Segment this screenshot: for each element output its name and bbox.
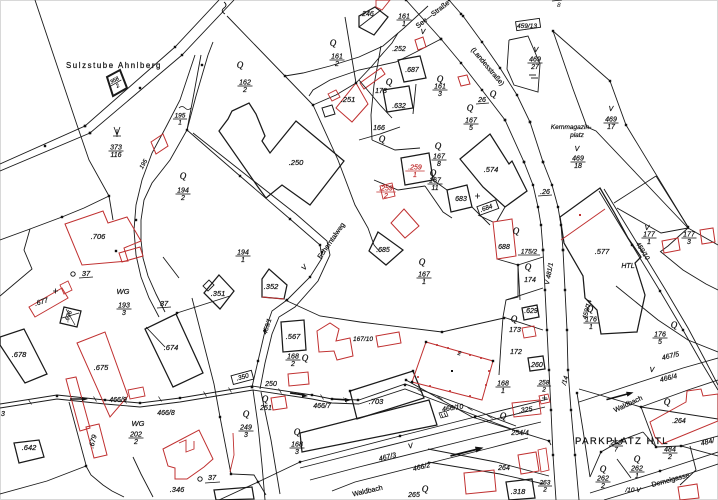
svg-text:.351: .351 bbox=[211, 289, 226, 298]
svg-text:254/4: 254/4 bbox=[510, 430, 529, 437]
svg-text:469: 469 bbox=[605, 117, 617, 124]
svg-text:.264: .264 bbox=[672, 418, 686, 425]
svg-text:.260: .260 bbox=[529, 362, 543, 369]
svg-text:.642: .642 bbox=[22, 443, 37, 452]
svg-text:2: 2 bbox=[541, 387, 546, 394]
svg-text:2: 2 bbox=[334, 61, 339, 68]
svg-text:V: V bbox=[650, 367, 656, 374]
svg-text:.251: .251 bbox=[341, 95, 356, 104]
svg-text:Q: Q bbox=[437, 74, 444, 84]
svg-text:.325: .325 bbox=[519, 406, 534, 415]
svg-text:.567: .567 bbox=[286, 332, 301, 341]
svg-text:1: 1 bbox=[178, 120, 182, 127]
svg-text:161: 161 bbox=[331, 54, 343, 61]
svg-text:8: 8 bbox=[557, 2, 561, 9]
svg-text:467/3: 467/3 bbox=[378, 452, 397, 463]
svg-text:263: 263 bbox=[539, 480, 551, 487]
svg-text:167: 167 bbox=[465, 118, 478, 125]
svg-text:178: 178 bbox=[375, 88, 387, 95]
svg-text:Q: Q bbox=[237, 60, 244, 70]
svg-text:37: 37 bbox=[208, 473, 217, 482]
svg-text:Q: Q bbox=[664, 397, 671, 407]
svg-text:Q: Q bbox=[435, 141, 442, 151]
svg-text:Q: Q bbox=[243, 409, 250, 419]
svg-text:Q: Q bbox=[634, 454, 641, 464]
svg-text:168: 168 bbox=[291, 442, 303, 449]
svg-text:176: 176 bbox=[654, 332, 666, 339]
svg-text:2: 2 bbox=[667, 454, 672, 461]
svg-text:8: 8 bbox=[437, 161, 441, 168]
svg-text:1: 1 bbox=[422, 279, 426, 286]
svg-text:467/5: 467/5 bbox=[661, 351, 680, 362]
svg-text:168: 168 bbox=[497, 381, 509, 388]
svg-text:HTL: HTL bbox=[621, 263, 634, 270]
svg-text:2: 2 bbox=[600, 483, 605, 490]
svg-text:1: 1 bbox=[589, 324, 593, 331]
svg-text:1: 1 bbox=[241, 257, 245, 264]
svg-text:2: 2 bbox=[456, 350, 462, 357]
svg-text:195: 195 bbox=[175, 113, 186, 120]
svg-text:.246: .246 bbox=[360, 11, 374, 18]
svg-text:1: 1 bbox=[413, 172, 417, 179]
svg-text:Q: Q bbox=[490, 89, 497, 99]
svg-text:177: 177 bbox=[643, 232, 656, 239]
svg-text:Q: Q bbox=[294, 427, 301, 437]
svg-text:167: 167 bbox=[418, 272, 431, 279]
svg-text:.577: .577 bbox=[595, 247, 610, 256]
svg-text:251: 251 bbox=[259, 405, 272, 412]
svg-text:Waldbach: Waldbach bbox=[352, 485, 384, 499]
svg-text:5: 5 bbox=[658, 339, 662, 346]
svg-text:.703: .703 bbox=[369, 397, 384, 406]
svg-text:466/2: 466/2 bbox=[412, 462, 431, 473]
svg-text:469: 469 bbox=[529, 57, 541, 64]
svg-text:162: 162 bbox=[239, 80, 251, 87]
svg-text:3: 3 bbox=[687, 239, 691, 246]
svg-text:Q: Q bbox=[330, 38, 337, 48]
svg-text:2: 2 bbox=[133, 439, 138, 446]
svg-text:.675: .675 bbox=[94, 363, 109, 372]
svg-text:3: 3 bbox=[438, 91, 442, 98]
svg-text:Sulzstube Ahnlberg: Sulzstube Ahnlberg bbox=[66, 61, 162, 70]
svg-text:.346: .346 bbox=[170, 485, 185, 494]
svg-text:2: 2 bbox=[242, 87, 247, 94]
svg-text:Q: Q bbox=[500, 411, 507, 421]
svg-text:PARKPLATZ HTL: PARKPLATZ HTL bbox=[575, 436, 669, 447]
svg-text:Q: Q bbox=[419, 257, 426, 267]
svg-text:.677: .677 bbox=[34, 297, 50, 308]
svg-text:264: 264 bbox=[497, 465, 510, 472]
svg-text:Waldbach: Waldbach bbox=[613, 395, 644, 414]
svg-text:WG: WG bbox=[117, 287, 130, 296]
svg-text:459/1: 459/1 bbox=[262, 317, 274, 335]
svg-text:27: 27 bbox=[530, 64, 540, 71]
svg-text:161: 161 bbox=[434, 84, 446, 91]
svg-text:688: 688 bbox=[498, 244, 510, 251]
svg-text:V: V bbox=[421, 29, 427, 36]
svg-text:265: 265 bbox=[407, 492, 420, 499]
svg-text:250: 250 bbox=[264, 381, 277, 388]
svg-text:466/8: 466/8 bbox=[157, 410, 175, 417]
svg-text:167/10: 167/10 bbox=[353, 336, 373, 343]
svg-text:174: 174 bbox=[524, 277, 536, 284]
svg-text:.259: .259 bbox=[408, 165, 422, 172]
svg-text:37: 37 bbox=[160, 299, 169, 308]
svg-text:.574: .574 bbox=[484, 165, 499, 174]
svg-text:/10 V: /10 V bbox=[624, 487, 641, 494]
svg-text:484: 484 bbox=[664, 447, 676, 454]
svg-text:Q: Q bbox=[671, 320, 678, 330]
svg-text:193: 193 bbox=[118, 303, 130, 310]
svg-text:262: 262 bbox=[596, 476, 609, 483]
svg-text:Q: Q bbox=[379, 134, 386, 144]
svg-text:.632: .632 bbox=[392, 103, 406, 110]
svg-text:V: V bbox=[575, 146, 581, 153]
svg-text:Q: Q bbox=[180, 171, 187, 181]
svg-text:Q: Q bbox=[600, 464, 607, 474]
svg-text:466/9: 466/9 bbox=[109, 397, 127, 404]
svg-text:V: V bbox=[301, 263, 310, 272]
svg-text:7: 7 bbox=[614, 447, 618, 454]
svg-text:262: 262 bbox=[610, 440, 622, 447]
svg-text:484/: 484/ bbox=[700, 437, 716, 447]
svg-text:Q: Q bbox=[430, 168, 437, 178]
svg-text:194: 194 bbox=[177, 188, 189, 195]
svg-text:167: 167 bbox=[429, 178, 442, 185]
svg-text:3: 3 bbox=[244, 432, 248, 439]
svg-text:373: 373 bbox=[110, 145, 122, 152]
svg-text:.679: .679 bbox=[88, 434, 98, 449]
svg-text:V: V bbox=[408, 442, 416, 450]
svg-text:175/2: 175/2 bbox=[521, 249, 538, 256]
svg-text:5: 5 bbox=[469, 125, 473, 132]
svg-text:249: 249 bbox=[239, 425, 252, 432]
svg-text:18: 18 bbox=[574, 163, 582, 170]
svg-text:168: 168 bbox=[287, 354, 299, 361]
svg-text:3: 3 bbox=[1, 411, 5, 418]
svg-text:.352: .352 bbox=[264, 282, 279, 291]
svg-text:2: 2 bbox=[383, 193, 388, 200]
svg-text:V 481/1: V 481/1 bbox=[544, 262, 555, 286]
svg-text:173: 173 bbox=[509, 327, 521, 334]
svg-text:See—Straße: See—Straße bbox=[415, 0, 451, 30]
svg-text:.687: .687 bbox=[405, 67, 420, 74]
svg-text:Q: Q bbox=[386, 77, 393, 87]
svg-text:WG: WG bbox=[132, 419, 145, 428]
svg-text:Kernmagazin-: Kernmagazin- bbox=[551, 124, 592, 131]
svg-text:683: 683 bbox=[455, 196, 467, 203]
svg-text:Q: Q bbox=[467, 103, 474, 113]
svg-text:3: 3 bbox=[122, 310, 126, 317]
svg-text:.678: .678 bbox=[12, 350, 27, 359]
svg-text:161: 161 bbox=[398, 14, 410, 21]
svg-text:Echerntalweg: Echerntalweg bbox=[317, 222, 347, 261]
svg-text:Q: Q bbox=[262, 394, 269, 404]
svg-text:262: 262 bbox=[630, 466, 643, 473]
svg-text:Q: Q bbox=[511, 314, 518, 324]
svg-text:3: 3 bbox=[295, 449, 299, 456]
svg-text:.259: .259 bbox=[379, 186, 393, 193]
svg-text:.706: .706 bbox=[91, 232, 106, 241]
svg-text:172: 172 bbox=[510, 349, 522, 356]
svg-text:V: V bbox=[534, 47, 540, 54]
svg-text:37: 37 bbox=[82, 269, 91, 278]
svg-text:.674: .674 bbox=[164, 343, 179, 352]
svg-text:1: 1 bbox=[635, 473, 639, 480]
svg-text:Q: Q bbox=[302, 353, 309, 363]
svg-text:167: 167 bbox=[433, 154, 446, 161]
svg-text:.685: .685 bbox=[376, 247, 390, 254]
svg-text:.318: .318 bbox=[511, 487, 526, 496]
svg-text:Q: Q bbox=[513, 226, 520, 236]
svg-text:166: 166 bbox=[373, 125, 385, 132]
svg-text:2: 2 bbox=[542, 487, 547, 494]
svg-text:Q: Q bbox=[525, 262, 532, 272]
svg-text:.252: .252 bbox=[392, 46, 406, 53]
svg-text:2: 2 bbox=[290, 361, 295, 368]
svg-text:V: V bbox=[609, 106, 615, 113]
svg-text:platz: platz bbox=[569, 132, 584, 139]
svg-text:202: 202 bbox=[129, 432, 142, 439]
svg-text:.629: .629 bbox=[524, 308, 538, 315]
svg-text:177: 177 bbox=[683, 232, 696, 239]
svg-text:11: 11 bbox=[431, 185, 438, 192]
svg-text:469: 469 bbox=[572, 156, 584, 163]
svg-text:.250: .250 bbox=[289, 158, 304, 167]
svg-text:2: 2 bbox=[180, 195, 185, 202]
svg-text:Q: Q bbox=[422, 484, 429, 494]
svg-text:1: 1 bbox=[501, 388, 505, 395]
svg-text:1: 1 bbox=[647, 239, 651, 246]
svg-text:194: 194 bbox=[237, 250, 249, 257]
svg-text:116: 116 bbox=[110, 152, 121, 159]
svg-text:1: 1 bbox=[402, 21, 406, 28]
svg-text:17: 17 bbox=[607, 124, 616, 131]
svg-text:2: 2 bbox=[114, 83, 121, 90]
svg-text:466/7: 466/7 bbox=[313, 403, 332, 410]
svg-text:466/10: 466/10 bbox=[442, 404, 464, 414]
svg-text:258: 258 bbox=[538, 380, 550, 387]
